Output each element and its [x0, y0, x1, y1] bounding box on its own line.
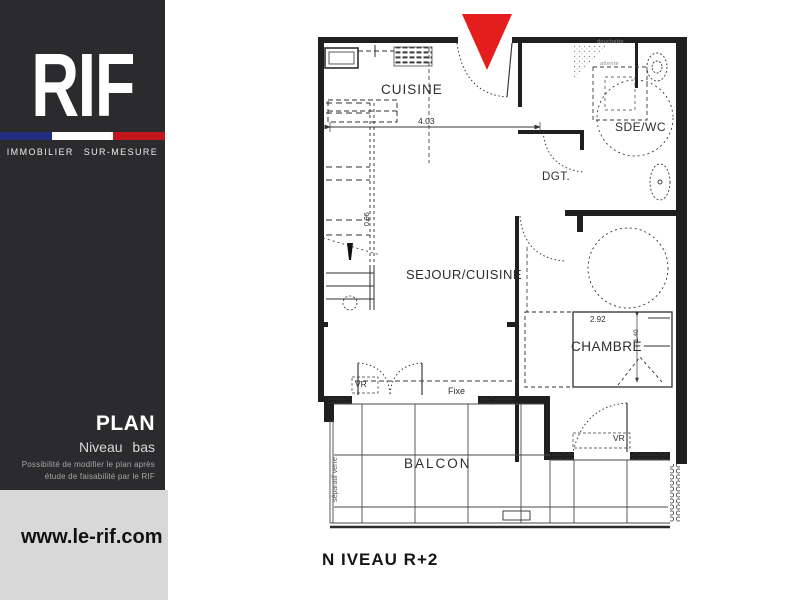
tricolor-stripe [0, 132, 165, 140]
website-link: www.le-rif.com [21, 526, 163, 549]
level-caption: N IVEAU R+2 [322, 550, 438, 570]
sidebar: RIF IMMOBILIER SUR-MESURE PLAN Niveau ba… [0, 0, 165, 490]
annotation-vr-sejour: VR [355, 379, 367, 389]
room-label-chambre: CHAMBRE [571, 339, 642, 354]
plan-title: PLAN [79, 412, 155, 436]
window-sills [327, 397, 668, 459]
room-label-balcon: BALCON [404, 456, 472, 471]
rif-logo: RIF [21, 40, 143, 132]
room-label-sde-wc: SDE/WC [615, 120, 666, 134]
balcony-tiles [330, 404, 670, 527]
stripe-blue [0, 132, 52, 140]
floor-plan: CUISINE SDE/WC DGT. SEJOUR/CUISINE CHAMB… [318, 30, 690, 532]
room-label-cuisine: CUISINE [381, 82, 443, 97]
kitchen-fixtures [325, 45, 432, 163]
entrance-marker-icon [462, 14, 512, 70]
annotation-attente: attente [600, 61, 619, 67]
dim-stair-width: 0.96 [364, 212, 371, 226]
stripe-white [52, 132, 113, 140]
sidebar-footer: www.le-rif.com [0, 490, 168, 600]
balcony-side-wall-hatch [670, 464, 680, 522]
doors [352, 43, 630, 452]
plan-subtitle: Niveau bas [79, 439, 155, 455]
dim-cuisine-width: 4.03 [418, 116, 435, 126]
dim-bed-width: 1.40 [633, 329, 640, 342]
dim-chambre-width: 2.92 [590, 315, 606, 324]
stripe-red [113, 132, 165, 140]
chambre-fixtures [525, 228, 672, 387]
annotation-separatif-verre: séparatif verre [332, 457, 339, 502]
annotation-vr-chambre: VR [613, 433, 625, 443]
plan-title-block: PLAN Niveau bas [79, 412, 155, 455]
room-label-sejour: SEJOUR/CUISINE [406, 267, 522, 282]
staircase [323, 103, 380, 310]
annotation-douchette: douchette [597, 39, 624, 45]
annotation-fixe: Fixe [448, 386, 465, 396]
logo-tagline: IMMOBILIER SUR-MESURE [0, 147, 165, 157]
room-label-dgt: DGT. [542, 171, 570, 183]
feasibility-note: Possibilité de modifier le plan après ét… [7, 459, 155, 483]
